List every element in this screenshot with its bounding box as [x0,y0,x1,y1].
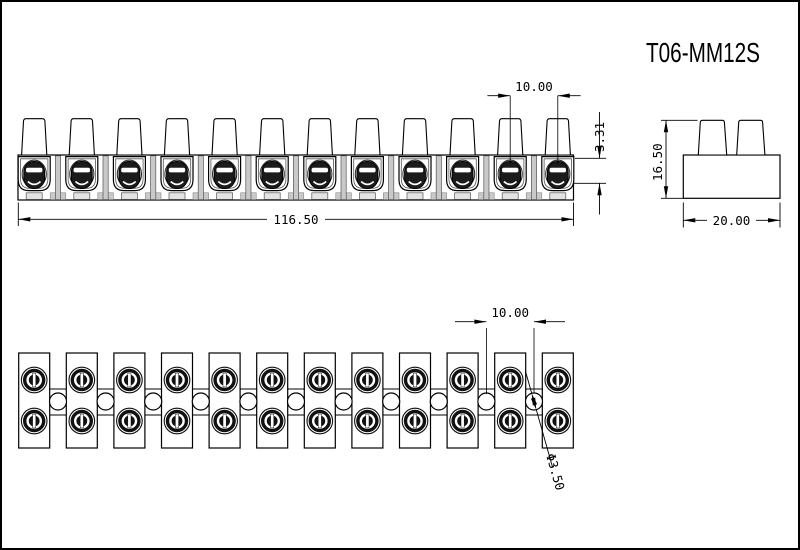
terminal-segment [304,353,335,448]
dim-pitch-plan-label: 10.00 [491,305,529,320]
dim-depth: 20.00 [683,203,780,228]
terminal-unit [399,119,431,200]
end-body [683,155,780,198]
terminal-segment [114,353,145,448]
mount-hole [145,393,162,410]
plan-view: 10.00 Φ3.50 [19,305,574,492]
terminal-unit [113,119,145,200]
terminal-unit [66,119,98,200]
dim-height-label: 16.50 [650,143,665,181]
terminal-unit [161,119,193,200]
terminal-segment [66,353,97,448]
front-view: 10.00 3.31 116.50 [18,79,607,227]
terminal-segment [542,353,573,448]
terminal-segment [209,353,240,448]
mount-hole [335,393,352,410]
dim-depth-label: 20.00 [713,213,751,228]
terminal-segment [162,353,193,448]
mount-hole [97,393,114,410]
end-cap-right [737,120,765,155]
dim-hole-diameter-label: Φ3.50 [543,452,568,492]
terminal-unit [304,119,336,200]
technical-drawing: T06-MM12S [0,0,800,550]
terminal-unit [351,119,383,200]
mount-hole [192,393,209,410]
mount-hole [240,393,257,410]
mount-hole [478,393,495,410]
drawing-sheet: T06-MM12S [0,0,800,550]
terminal-unit [256,119,288,200]
end-view: 16.50 20.00 [650,120,780,228]
mount-hole [288,393,305,410]
dim-screw-offset-label: 3.31 [592,122,607,152]
part-number-title: T06-MM12S [646,37,760,68]
terminal-unit [209,119,241,200]
terminal-segment [495,353,526,448]
terminal-unit [447,119,479,200]
dim-total-length: 116.50 [18,203,573,227]
terminal-unit [18,119,50,200]
terminal-segment [447,353,478,448]
terminal-segment [400,353,431,448]
terminal-segment [19,353,50,448]
terminal-segment [257,353,288,448]
dim-pitch-front-label: 10.00 [515,79,553,94]
dim-screw-offset: 3.31 [574,112,607,215]
mount-hole [430,393,447,410]
terminal-segment [352,353,383,448]
end-cap-left [698,120,726,155]
mount-hole [50,393,67,410]
mount-hole [383,393,400,410]
sheet-border [1,1,799,549]
dim-total-length-label: 116.50 [273,212,318,227]
